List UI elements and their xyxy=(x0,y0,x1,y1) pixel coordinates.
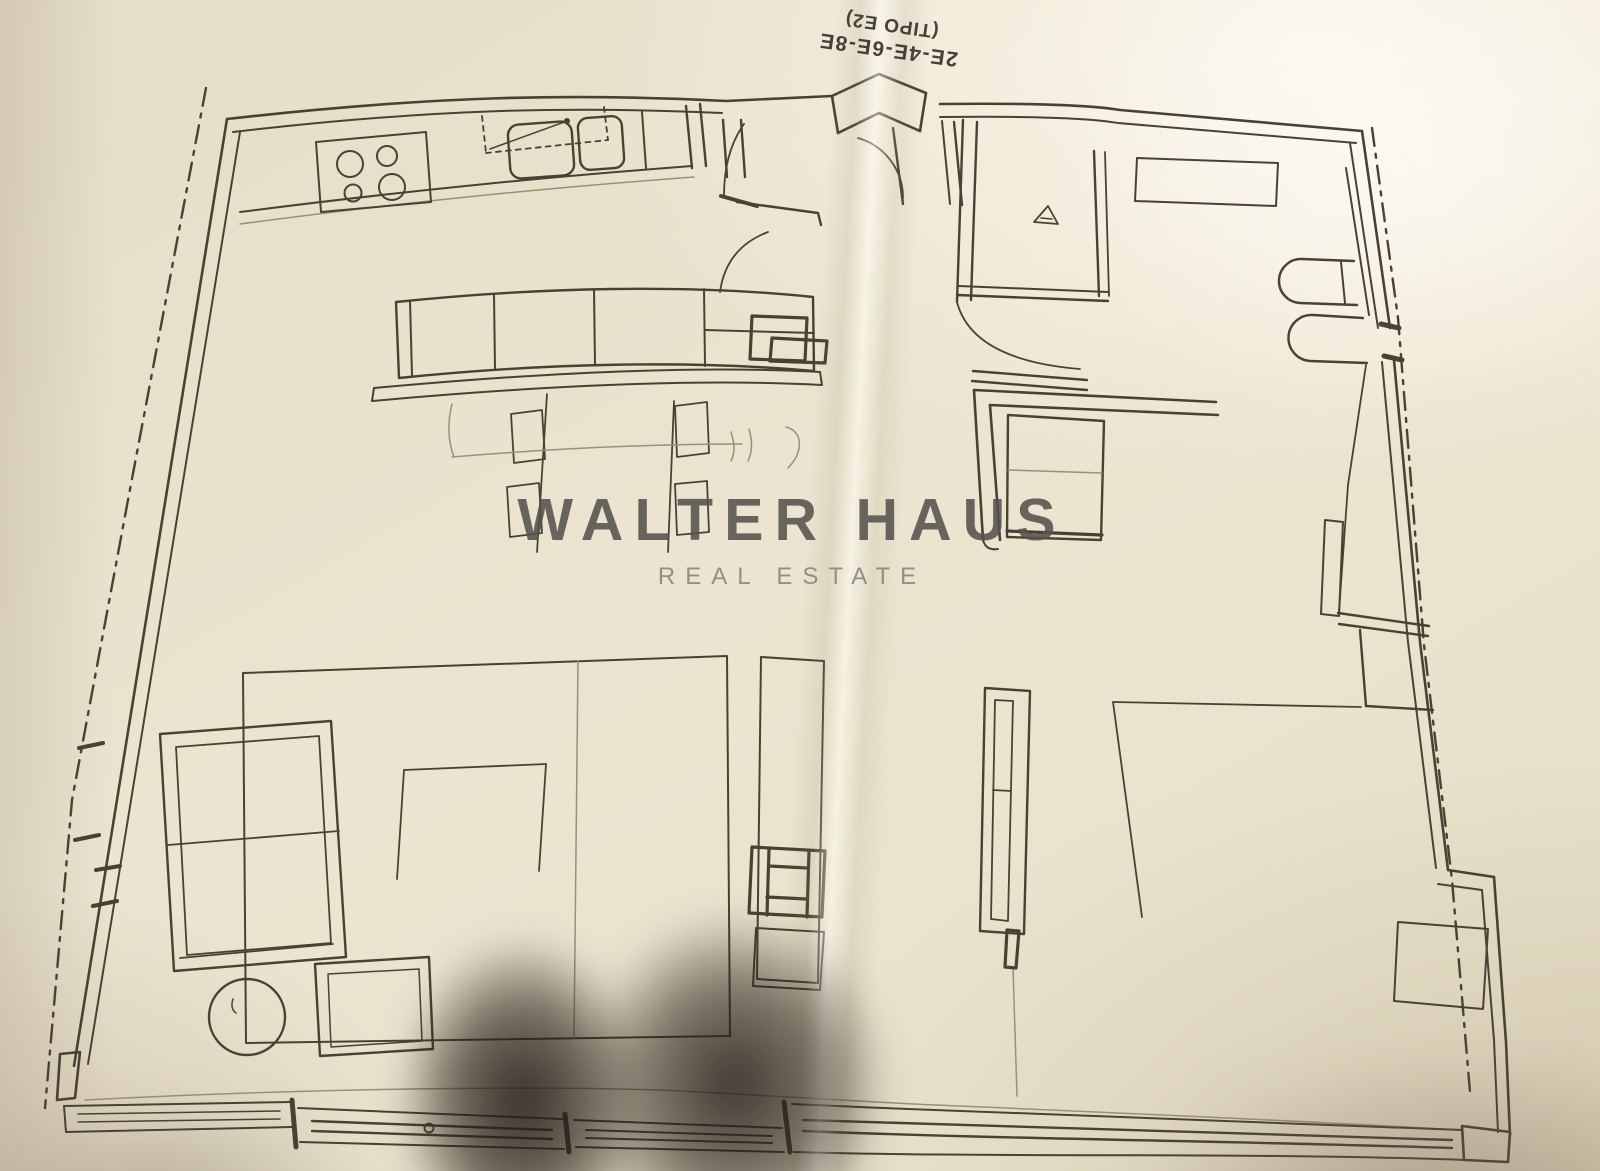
kitchen-counter xyxy=(240,104,706,224)
hallway-walls xyxy=(972,371,1218,549)
dressing-room xyxy=(957,120,1109,369)
bottom-window-band xyxy=(57,1052,1510,1162)
dining-table-sketch xyxy=(449,394,800,552)
bedroom xyxy=(1013,365,1488,1096)
property-boundary-right xyxy=(1372,128,1470,1092)
kitchen-sink xyxy=(482,107,625,179)
entrance-door xyxy=(832,74,962,205)
property-boundary-left xyxy=(45,88,206,1108)
sofa xyxy=(160,721,346,971)
bathroom-fixtures xyxy=(1279,259,1367,363)
wardrobe xyxy=(1135,158,1369,315)
utility-shaft xyxy=(1007,415,1104,540)
kitchen-door-swings xyxy=(720,124,821,292)
armchair xyxy=(397,764,546,879)
sliding-door-panel xyxy=(980,688,1030,968)
media-cabinet xyxy=(749,657,825,990)
kitchen-island xyxy=(372,289,827,401)
floor-plan-photo: 2E-4E-6E-8E (TIPO E2) WALTER HAUS REAL E… xyxy=(0,0,1600,1171)
exterior-walls xyxy=(74,96,1510,1136)
floor-plan-drawing xyxy=(0,0,1600,1171)
